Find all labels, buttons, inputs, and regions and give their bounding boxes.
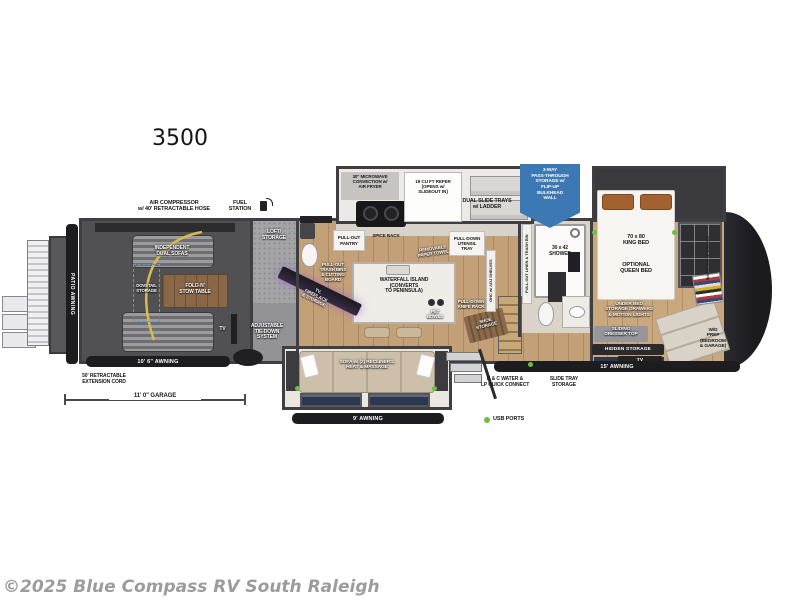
fifteen-awning-label: 15' AWNING bbox=[600, 364, 633, 370]
kitchen-window bbox=[300, 216, 332, 223]
linen-strip: PULL-OUT LINEN & TRASH BIN bbox=[522, 224, 532, 304]
bed-pillow bbox=[602, 194, 634, 210]
bath-toilet bbox=[538, 302, 554, 326]
usb-port-dot bbox=[432, 386, 437, 391]
usb-legend-dot bbox=[484, 417, 490, 423]
fuel-pump-icon bbox=[260, 198, 274, 212]
garage-dimension-label: 11' 0" GARAGE bbox=[109, 393, 201, 400]
microwave-label: 30" MICROWAVE CONVECTION w/ AIR FRYER bbox=[341, 172, 399, 200]
sofa-recliners-label: SOFA w/ (2) RECLINERS, HEAT & MASSAGE bbox=[312, 360, 422, 371]
slide-window bbox=[300, 393, 362, 407]
usb-port-dot bbox=[295, 386, 300, 391]
island-stool bbox=[396, 327, 422, 338]
copyright-text: ©2025 Blue Compass RV South Raleigh bbox=[3, 577, 380, 597]
waterfall-island-label: WATERFALL ISLAND (CONVERTS TO PENINSULA) bbox=[362, 278, 446, 295]
island-stool bbox=[364, 327, 390, 338]
loft-storage-label: LOFT/ STORAGE bbox=[250, 230, 298, 241]
linen-trash-label: PULL-OUT LINEN & TRASH BIN bbox=[523, 225, 531, 303]
nine-awning-label: 9' AWNING bbox=[353, 416, 383, 422]
wall-bath-bedroom bbox=[590, 221, 593, 361]
refrigerator-label: 19 CU FT REFER [OPENS w/ SLIDEOUT IN] bbox=[404, 172, 462, 222]
page-title: 3500 bbox=[152, 126, 208, 151]
garage-tv-label: TV bbox=[216, 327, 229, 333]
patio-awning-bar: PATIO AWNING bbox=[66, 224, 78, 364]
pass-through-label: 3-WAY PASS-THROUGH STORAGE w/ FLIP-UP BU… bbox=[520, 168, 580, 202]
landing-gear bbox=[233, 349, 263, 366]
air-compressor-label: AIR COMPRESSOR w/ 40' RETRACTABLE HOSE bbox=[128, 200, 220, 212]
bath-vanity bbox=[562, 296, 590, 328]
under-bed-label: UNDER BED STORAGE DRAWERS & MOTION LIGHT… bbox=[596, 302, 662, 318]
tie-down-label: ADJUSTABLE TIE-DOWN SYSTEM bbox=[236, 324, 298, 341]
optional-queen-label: OPTIONAL QUEEN BED bbox=[600, 262, 672, 274]
sofa-end-table bbox=[286, 351, 299, 391]
recliner-sofa bbox=[299, 351, 435, 393]
knife-rack-label: PULL-DOWN KNIFE RACK bbox=[450, 299, 492, 309]
pet-bowl-icon bbox=[437, 299, 444, 306]
garage-dimension: 11' 0" GARAGE bbox=[64, 393, 246, 406]
spice-rack-label: SPICE RACK bbox=[366, 233, 406, 238]
patio-fence bbox=[27, 240, 49, 346]
patio-awning-label: PATIO AWNING bbox=[69, 273, 75, 315]
extension-cord-label: 50' RETRACTABLE EXTENSION CORD bbox=[68, 374, 140, 385]
garage-awning-label: 10' 6" AWNING bbox=[137, 359, 178, 365]
garage-awning-bar: 10' 6" AWNING bbox=[86, 356, 230, 367]
hc-water-label: H & C WATER & LP QUICK CONNECT bbox=[476, 377, 534, 388]
burner-icon bbox=[363, 206, 378, 221]
usb-port-dot bbox=[672, 230, 677, 235]
dual-sofas-label: INDEPENDENT DUAL SOFAS bbox=[128, 246, 216, 257]
wd-prep-label: W/D PREP (BEDROOM & GARAGE) bbox=[690, 328, 736, 350]
hidden-storage-label: HIDDEN STORAGE bbox=[605, 347, 651, 352]
wall-kitchen-bath bbox=[518, 221, 521, 337]
king-bed-label: 70 x 80 KING BED bbox=[600, 234, 672, 246]
half-bath-sink bbox=[300, 223, 315, 239]
wardrobe-strip: WARDROBE w/ SHELVES bbox=[704, 230, 713, 288]
usb-port-dot bbox=[528, 362, 533, 367]
fold-n-stow-label: FOLD-N' STOW TABLE bbox=[164, 284, 226, 295]
nine-awning-bar: 9' AWNING bbox=[292, 413, 444, 424]
pet-bowls-label: PET BOWLS bbox=[420, 309, 450, 319]
dual-slide-trays-label: DUAL SLIDE TRAYS w/ LADDER bbox=[452, 198, 522, 210]
usb-ports-label: USB PORTS bbox=[493, 416, 537, 422]
usb-port-dot bbox=[592, 230, 597, 235]
floorplan: 3500 PATIO AWNING INDEPENDENT DUAL SOFAS… bbox=[0, 0, 800, 600]
pet-bowl-icon bbox=[428, 299, 435, 306]
pantry-label: PULL-OUT PANTRY bbox=[333, 230, 365, 251]
showerhead-icon bbox=[570, 228, 580, 238]
sliding-dresser-label: SLIDING DRESSER TOP bbox=[594, 327, 648, 338]
slide-tray-storage-label: SLIDE TRAY STORAGE bbox=[542, 377, 586, 388]
hidden-storage-bar: HIDDEN STORAGE bbox=[592, 344, 664, 355]
wardrobe-label: WARDROBE w/ SHELVES bbox=[704, 230, 712, 286]
island-sink bbox=[386, 265, 410, 275]
trash-bins-label: PULL-OUT TRASH BINS & CUTTING BOARD bbox=[310, 262, 356, 282]
burner-icon bbox=[384, 206, 399, 221]
fuel-station-label: FUEL STATION bbox=[222, 200, 258, 212]
bed-pillow bbox=[640, 194, 672, 210]
dovetail-storage-label: DOVETAIL STORAGE bbox=[133, 284, 160, 294]
shower-label: 30 x 42 SHOWER bbox=[538, 246, 582, 257]
slide-window bbox=[368, 393, 430, 407]
utensil-tray-label: PULL-DOWN UTENSIL TRAY bbox=[449, 231, 485, 256]
cooktop bbox=[356, 201, 406, 227]
